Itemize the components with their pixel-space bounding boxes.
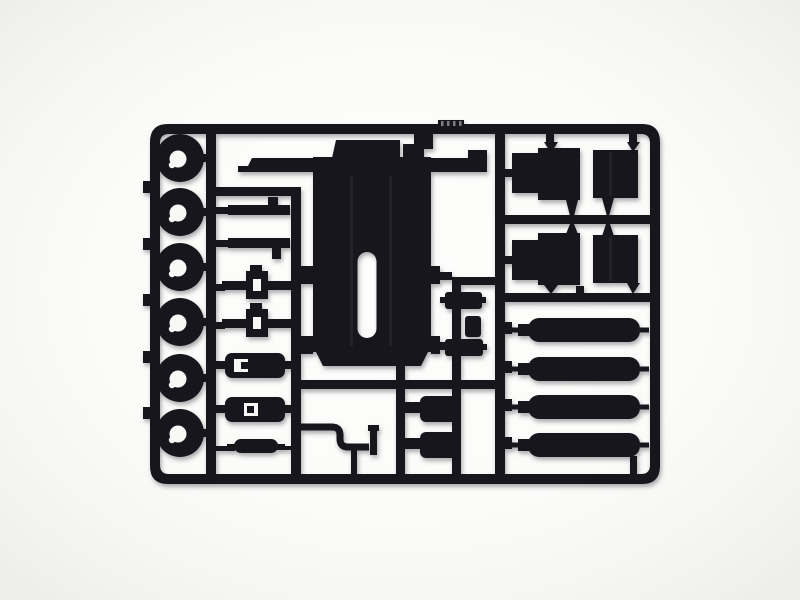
tank-end-pin [640,328,649,333]
photo-background [0,0,800,600]
seat-part [512,233,580,285]
air-tank-part [505,357,649,381]
tank-body [528,395,640,419]
bracket-pin [481,297,486,303]
seat-parts [505,134,640,294]
sprue-gate [544,285,558,294]
suspension-parts [216,197,294,337]
equipment-box-part [405,432,458,458]
cylinder-body [234,439,278,453]
tank-end-pin [511,443,519,448]
wheel-hub-notch [169,382,175,388]
stowage-box-part [216,353,292,378]
tank-collar [518,324,529,336]
sprue-gate [440,272,452,280]
seat-part [512,148,580,200]
runner-vertical-left [206,134,216,474]
tank-end-pin [511,367,519,372]
tank-body [528,318,640,342]
spring-bar [228,238,290,248]
wheel-part [156,409,208,457]
tank-end-pin [511,405,519,410]
tank-end-pin [640,443,649,448]
tank-end-pin [640,367,649,372]
panel-slab [313,157,431,352]
tank-collar [518,363,529,375]
bracket-block [445,339,483,356]
cylinder-collar [277,444,285,450]
sprue-gate [216,240,228,247]
runner-vertical-right [495,134,505,474]
seat-seam [609,152,612,196]
axle-part [216,265,294,299]
sprue-gate [505,399,512,411]
edge-nub [143,351,151,363]
sprue-gate [566,200,578,216]
sprue-gate [505,322,512,334]
sprue-gate [630,456,637,474]
seat-panel-small [512,240,538,280]
axle-slot [253,279,261,291]
stowage-box-parts [216,353,292,422]
molded-marking [438,120,464,128]
spring-hook [268,197,278,206]
seat-panel-large [538,233,580,285]
equipment-box-part [405,396,458,422]
pipe-run [301,427,369,447]
air-tank-part [505,318,649,342]
tank-body [528,433,640,457]
bracket-pin [440,297,446,303]
wheel-part [156,243,208,291]
sprue-gate [351,450,357,474]
runner-seats-mid [495,215,650,224]
marking-tick [441,121,444,126]
seat-part [593,235,638,283]
air-tank-part [505,433,649,474]
pipe-end-nub [368,425,379,431]
spring-hook [272,248,281,259]
spring-bar [228,205,290,215]
sprue-gate [566,224,578,234]
seat-panel-small [512,153,538,193]
panel-side-tab [431,336,440,354]
sprue-gate [576,286,584,294]
sprue-gate [505,361,512,373]
tank-collar [518,439,529,451]
sprue-gate [216,361,226,369]
edge-nub [143,294,151,306]
wheel-part [156,134,208,182]
box-recess-tab [241,362,248,369]
panel-side-tab [299,336,313,354]
sprue-gate [602,224,614,236]
seat-panel-large [593,150,638,198]
frame-edge-nubs [143,181,151,419]
bracket-block-mid [465,316,481,337]
runner-vertical-mid [291,189,301,474]
axle-nub [250,303,262,309]
sprue-photo [0,0,800,600]
sprue-gate [627,283,640,294]
bent-pipe-part [301,425,379,474]
panel-side-tab [431,266,440,284]
wheel-hub-notch [169,271,175,277]
panel-right-end [468,150,487,172]
wheel-part [156,298,208,346]
tank-end-pin [640,405,649,410]
sprue-gate [396,360,405,382]
wheel-part [156,188,208,236]
sprue-gate [216,207,228,214]
seat-seam [609,237,612,281]
tank-body [528,357,640,381]
edge-nub [143,407,151,419]
air-tank-part [505,395,649,419]
runner-vertical-lower [396,385,405,474]
panel-side-tab [299,266,313,284]
seat-part [593,150,638,198]
wheel-hub-notch [169,216,175,222]
air-tank-parts [505,318,649,474]
box-body [420,396,458,422]
bracket-pin [482,344,487,350]
sprue-gate [546,134,554,143]
sprue [143,120,660,484]
panel-seam [350,176,353,346]
marking-tick [459,121,462,126]
wheel-hub-notch [169,437,175,443]
leaf-spring-part [216,238,290,259]
panel-step [403,144,424,158]
tank-end-pin [511,328,519,333]
small-cylinder-part [216,439,292,453]
marking-tick [453,121,456,126]
sprue-gate [629,134,637,143]
box-notch [405,438,420,449]
runner-bracket-top [452,277,505,285]
runner-horizontal-upper [206,187,301,196]
sprue-gate [216,446,227,451]
wheel-hub-notch [169,326,175,332]
sprue-gate [216,405,226,413]
edge-nub [143,181,151,193]
wheel-parts [156,134,208,457]
leaf-spring-part [216,197,290,215]
panel-seam [389,176,392,346]
stowage-box-part [216,397,292,422]
panel-hump [332,140,400,158]
runner-seats-bottom [495,293,650,302]
wheel-part [156,354,208,402]
bracket-parts [440,292,487,356]
box-body [420,432,458,458]
sprue-gate [505,256,513,264]
bracket-pin [440,344,446,350]
panel-skirt [316,352,428,366]
equipment-box-parts [405,396,458,458]
axle-nub [250,265,262,271]
axle-part [216,303,294,337]
edge-nub [143,238,151,250]
pipe-end [370,429,377,455]
sprue-gate [505,437,512,449]
bracket-block [445,292,482,309]
seat-panel-large [538,148,580,200]
sprue-gate [602,198,614,216]
box-notch [405,402,420,413]
wheel-hub-notch [169,162,175,168]
box-recess-tab [247,406,254,413]
tank-collar [518,401,529,413]
sprue-gate [284,446,292,450]
cylinder-collar [227,444,235,451]
axle-slot [253,317,261,329]
sprue-gate [505,169,513,177]
marking-tick [447,121,450,126]
seat-panel-large [593,235,638,283]
